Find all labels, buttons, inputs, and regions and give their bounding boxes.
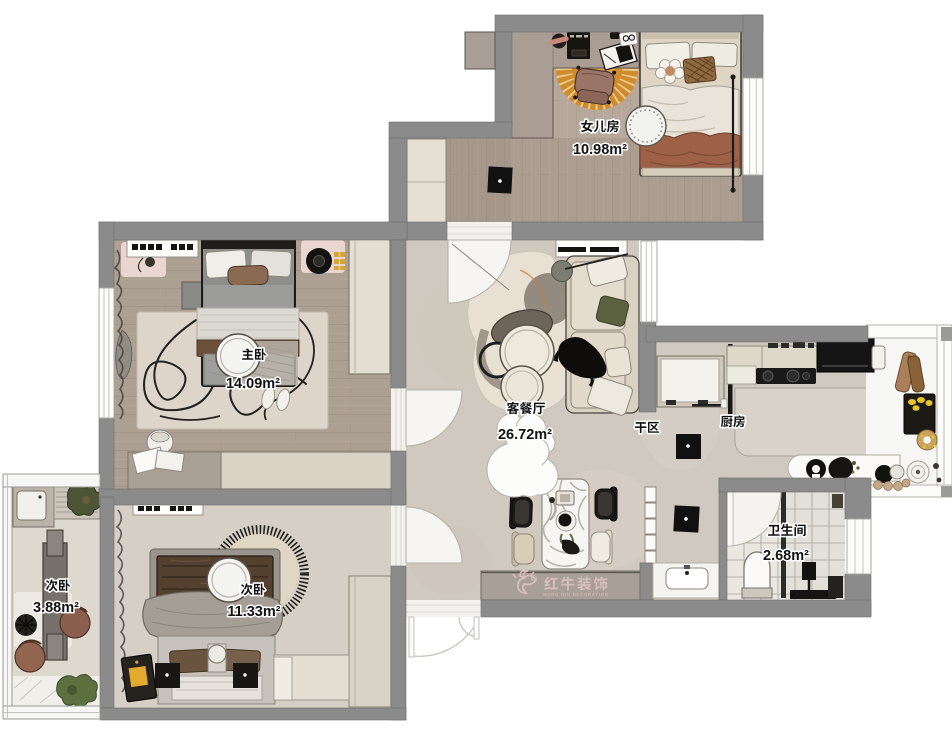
svg-text:11.33m²: 11.33m² [227,604,280,620]
svg-text:14.09m²: 14.09m² [226,376,280,392]
svg-text:2.68m²: 2.68m² [763,548,809,564]
svg-text:10.98m²: 10.98m² [573,142,627,158]
svg-text:3.88m²: 3.88m² [33,600,79,616]
svg-text:26.72m²: 26.72m² [498,427,552,443]
svg-text:HONG NIU DECORATION: HONG NIU DECORATION [543,592,608,597]
